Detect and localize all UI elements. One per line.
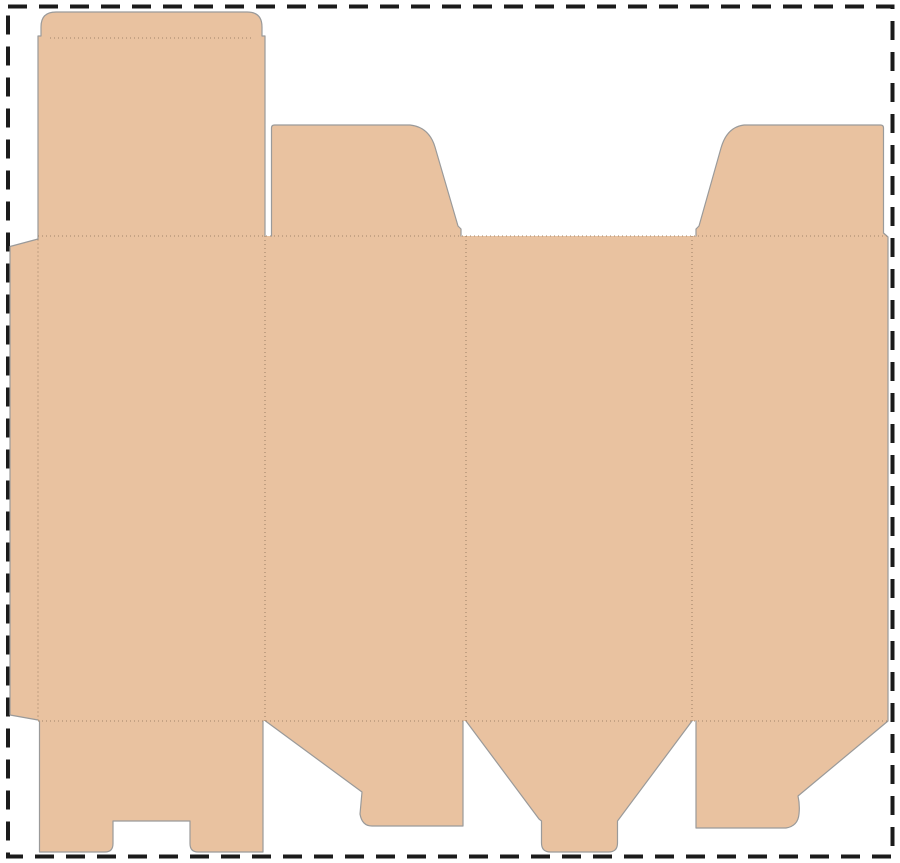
dieline [10,12,888,852]
dieline-canvas [0,0,900,863]
dieline-material [10,12,888,852]
dieline-artboard [0,0,900,863]
